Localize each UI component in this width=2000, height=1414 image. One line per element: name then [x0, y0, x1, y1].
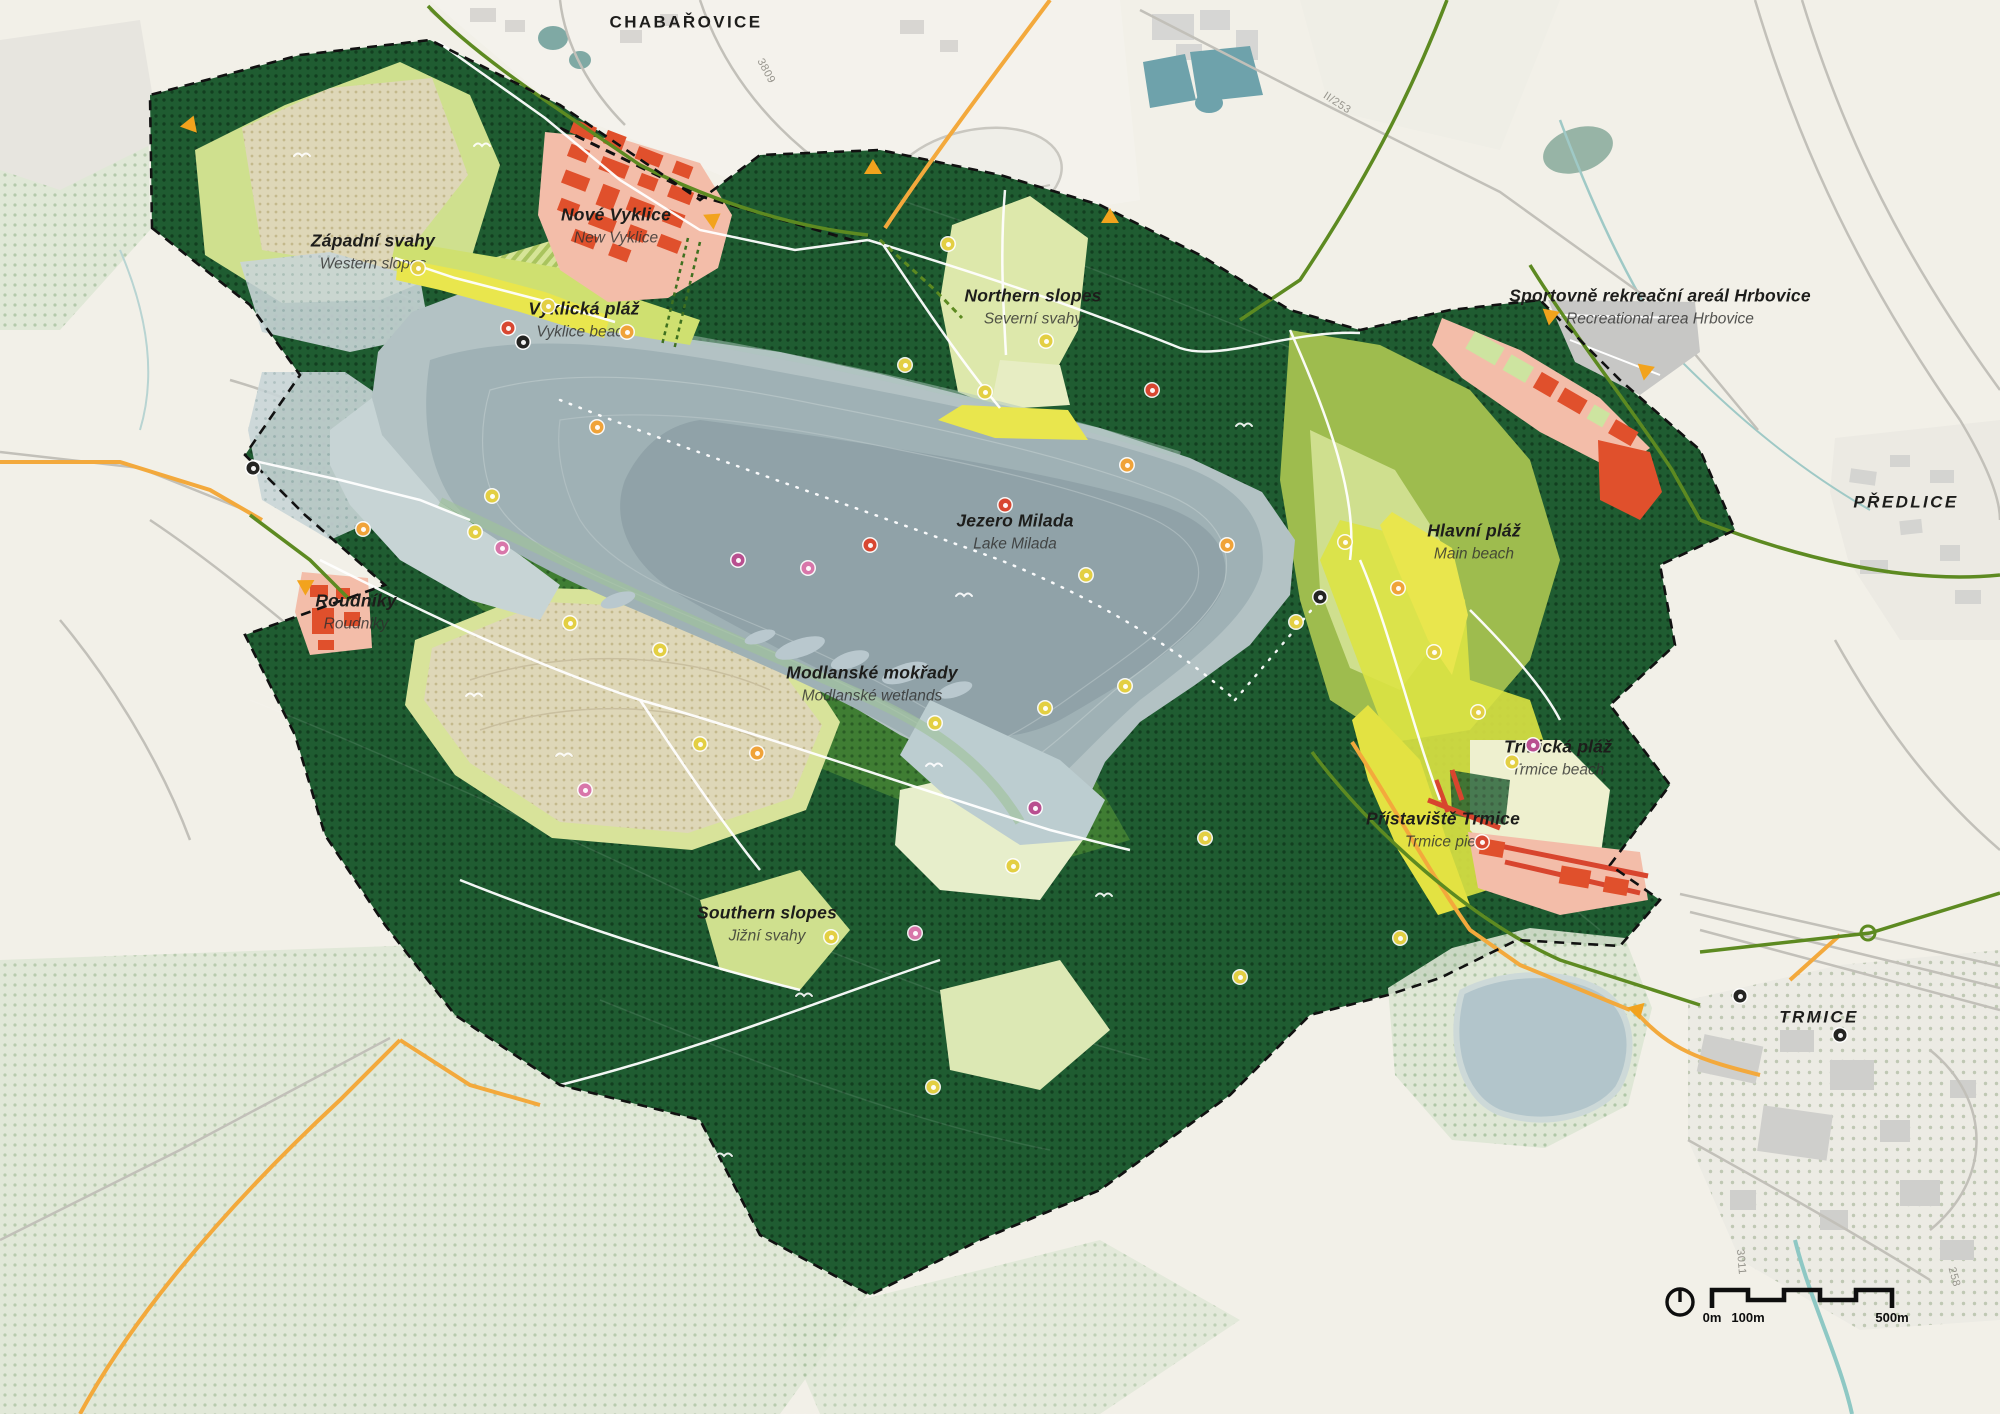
scale-bar-artwork — [1660, 1280, 1910, 1332]
road-refs-layer: II/25338093011258 — [0, 0, 2000, 1414]
scale-bar-battlement — [1712, 1290, 1892, 1308]
road-ref-label: 3809 — [754, 56, 777, 85]
scale-label-100: 100m — [1731, 1310, 1764, 1325]
scale-label-0: 0m — [1703, 1310, 1722, 1325]
road-ref-label: 258 — [1946, 1266, 1963, 1288]
road-ref-label: II/253 — [1321, 90, 1353, 117]
scale-bar: 0m 100m 500m — [1660, 1280, 1910, 1332]
north-arrow-icon — [1667, 1288, 1693, 1315]
scale-label-500: 500m — [1875, 1310, 1908, 1325]
road-ref-label: 3011 — [1734, 1249, 1748, 1276]
map-canvas: CHABAŘOVICEPŘEDLICETRMICEZápadní svahyWe… — [0, 0, 2000, 1414]
